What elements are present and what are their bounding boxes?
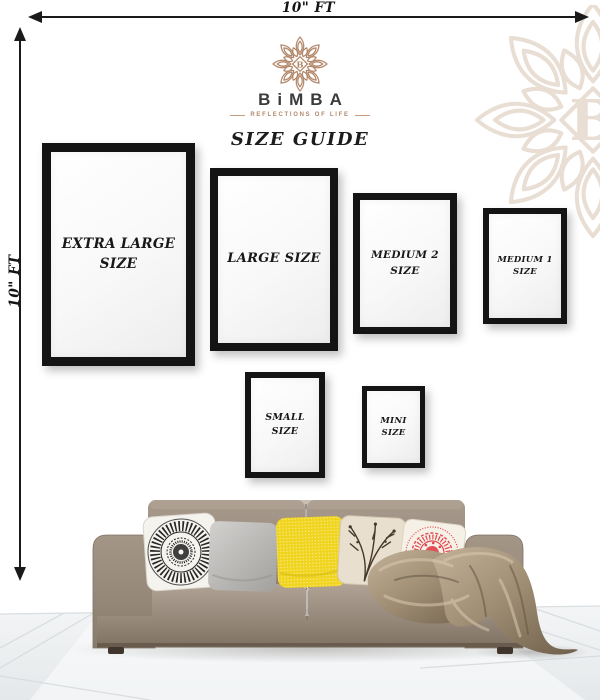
frame-label: EXTRA LARGE SIZE <box>62 235 176 274</box>
pillow-gray <box>208 521 278 592</box>
frame-label: MEDIUM 2 SIZE <box>371 248 439 278</box>
pillow-yellow <box>276 516 346 588</box>
frame-label: MINI SIZE <box>380 415 406 440</box>
frame-mini: MINI SIZE <box>362 386 425 468</box>
frame-extra-large: EXTRA LARGE SIZE <box>42 143 195 366</box>
brand-name: BiMBA <box>0 90 600 110</box>
frame-label: LARGE SIZE <box>227 250 320 269</box>
brand-monogram: B <box>296 60 303 70</box>
tagline-dash-left <box>230 115 245 116</box>
frame-label: MEDIUM 1 SIZE <box>497 254 552 279</box>
brand-mandala-icon: B <box>268 36 332 92</box>
frame-small: SMALL SIZE <box>245 372 325 478</box>
frame-medium-1: MEDIUM 1 SIZE <box>483 208 567 324</box>
pillow-mandala-bw <box>143 513 220 592</box>
brand-logo: B BiMBA REFLECTIONS OF LIFE SIZE GUIDE <box>0 36 600 150</box>
tagline-dash-right <box>355 115 370 116</box>
frame-large: LARGE SIZE <box>210 168 338 351</box>
frame-label: SMALL SIZE <box>265 411 305 439</box>
size-guide-poster: B 10" FT 10" FT B BiMBA REFLECTIONS OF L… <box>0 0 600 700</box>
brand-tagline: REFLECTIONS OF LIFE <box>250 112 349 118</box>
frame-medium-2: MEDIUM 2 SIZE <box>353 193 457 334</box>
